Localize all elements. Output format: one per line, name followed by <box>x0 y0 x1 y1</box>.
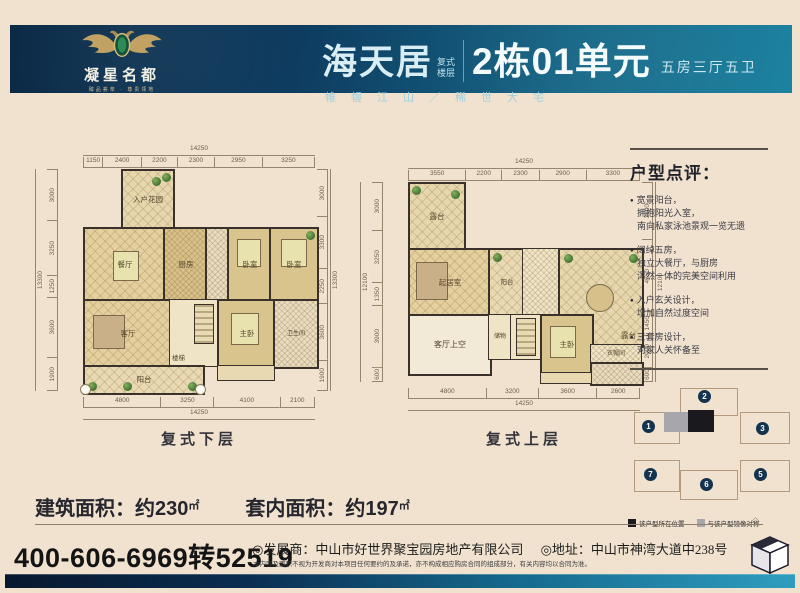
legend-swatch-current <box>628 519 636 527</box>
legend-swatch-mirror <box>697 519 705 527</box>
site-plan: 1 2 3 7 6 5 <box>628 386 796 514</box>
dim-left-segments: 30003250125036001900 <box>47 169 58 391</box>
developer-line: ◎发展商：中山市好世界聚宝园房地产有限公司 ◎地址：中山市神湾大道中238号 <box>252 539 752 558</box>
room-master-upper: 主卧 <box>540 314 594 376</box>
column-dot <box>80 384 91 395</box>
room-label: 衣帽间 <box>607 351 625 358</box>
site-plan-legend: 该户型所在位置 与该户型镜像对称 <box>628 518 760 528</box>
review-bottom-rule <box>630 368 768 370</box>
room-balcony-right <box>217 365 275 381</box>
review-line: 三套房设计， <box>630 331 768 344</box>
plant <box>306 231 315 240</box>
dim-top-segments: 35502200230029003300 <box>408 170 640 181</box>
mirror-unit-block <box>664 412 688 432</box>
dim-bottom-total: 14250 <box>83 409 315 420</box>
room-hall-upper <box>522 248 560 316</box>
room-dining: 餐厅 <box>83 227 167 303</box>
review-line: 南向私家泳池景观一览无遗 <box>630 220 768 233</box>
divider-rule <box>35 524 763 525</box>
legend-item: 与该户型镜像对称 <box>697 518 760 528</box>
header-banner: 凝星名都 臻品荟萃 · 尊贵领地 海天居 复式 楼层 2栋01单元 五房三厅五卫… <box>10 25 792 93</box>
project-tag-line1: 复式 <box>437 57 455 67</box>
round-table <box>586 284 614 312</box>
legend-item: 该户型所在位置 <box>628 518 685 528</box>
title-divider <box>463 40 464 82</box>
room-family: 起居室 <box>408 248 492 318</box>
dim-left-segments: 3000325013503900600 <box>372 182 383 382</box>
project-name: 海天居 <box>322 34 433 85</box>
review-panel: 户型点评： 宽景阳台， 拥抱阳光入室， 南向私家泳池景观一览无遗 阔绰五房， 独… <box>630 148 768 370</box>
brand-tagline: 臻品荟萃 · 尊贵领地 <box>62 86 182 93</box>
room-stairs-upper <box>510 314 542 360</box>
project-tag-line2: 楼层 <box>437 68 455 78</box>
room-label: 阳台 <box>501 279 514 286</box>
room-balcony-strip <box>540 372 592 384</box>
review-line: 对家人关怀备至 <box>630 344 768 357</box>
room-label: 卧室 <box>287 261 302 269</box>
review-line: 宽景阳台， <box>630 194 768 207</box>
room-label: 阳台 <box>137 376 152 384</box>
room-entry-garden: 入户花园 <box>121 169 175 231</box>
disclaimer: 本内容及面积不视为开发商对本项目任何要约的及承诺，亦不构成相应购房合同的组成部分… <box>253 558 591 568</box>
room-label: 入户花园 <box>133 196 163 204</box>
inner-area-unit: ㎡ <box>399 500 410 512</box>
plant <box>412 186 421 195</box>
review-line: 浑然一体的完美空间利用 <box>630 270 768 283</box>
floorplan-lower: 14250 115024002200230029503250 13300 300… <box>35 145 340 425</box>
developer-name: ◎发展商：中山市好世界聚宝园房地产有限公司 <box>252 542 523 557</box>
room-storage: 储物 <box>488 314 512 360</box>
room-living: 客厅 <box>83 299 173 369</box>
room-label: 卧室 <box>243 261 258 269</box>
dim-bottom-segments: 4800325041002100 <box>83 397 315 408</box>
plant <box>123 382 132 391</box>
room-master: 主卧 <box>217 299 277 369</box>
built-area-value: 约230 <box>135 498 188 520</box>
room-terrace-left: 露台 <box>408 182 466 252</box>
unit-spec: 五房三厅五卫 <box>661 57 757 77</box>
review-top-rule <box>630 148 768 150</box>
building-outline <box>634 460 680 492</box>
dim-left-total: 12100 <box>360 182 371 382</box>
room-label: 厨房 <box>179 261 194 269</box>
review-line: 增加自然过度空间 <box>630 307 768 320</box>
dim-left-total: 13300 <box>35 169 46 391</box>
review-bullets: 宽景阳台， 拥抱阳光入室， 南向私家泳池景观一览无遗 阔绰五房， 独立大餐厅，与… <box>630 194 768 357</box>
unit-title: 2栋01单元 <box>472 31 651 85</box>
room-label: 储物 <box>494 334 506 341</box>
caption-upper: 复式上层 <box>408 428 640 449</box>
room-bedroom-1: 卧室 <box>227 227 273 303</box>
building-number: 5 <box>754 468 767 481</box>
room-hall-stairs: 楼梯 <box>169 299 219 367</box>
building-number: 1 <box>642 420 655 433</box>
dim-top-total: 14250 <box>83 145 315 156</box>
dim-top-segments: 115024002200230029503250 <box>83 157 315 168</box>
building-number: 6 <box>700 478 713 491</box>
title-group: 海天居 复式 楼层 2栋01单元 五房三厅五卫 <box>322 31 757 85</box>
dim-bottom-total: 14250 <box>408 400 640 411</box>
plant <box>451 190 460 199</box>
inner-area-label: 套内面积： <box>245 498 345 520</box>
built-area-label: 建筑面积： <box>35 498 135 520</box>
inner-area: 套内面积：约197㎡ <box>245 492 409 521</box>
room-void: 客厅上空 <box>408 314 492 376</box>
plant <box>564 254 573 263</box>
brand-logo: 凝星名都 臻品荟萃 · 尊贵领地 <box>62 27 182 93</box>
room-kitchen: 厨房 <box>163 227 209 303</box>
room-balcony: 阳台 <box>83 365 205 395</box>
plant <box>152 177 161 186</box>
dim-bottom-segments: 4800320036002600 <box>408 388 640 399</box>
built-area: 建筑面积：约230㎡ <box>35 492 199 521</box>
floorplan-upper-body: 露台 起居室 阳台 露台 客厅上空 储物 <box>408 182 640 382</box>
inner-area-value: 约197 <box>345 498 398 520</box>
room-label: 楼梯 <box>172 355 185 362</box>
column-dot <box>195 384 206 395</box>
building-number: 2 <box>698 390 711 403</box>
building-number: 7 <box>644 468 657 481</box>
plant <box>162 173 171 182</box>
building-number: 3 <box>756 422 769 435</box>
floorplan-lower-body: 入户花园 餐厅 厨房 卧室 卧室 客厅 <box>83 169 315 391</box>
review-line: 入户玄关设计， <box>630 294 768 307</box>
plant <box>493 253 502 262</box>
room-bedroom-2: 卧室 <box>269 227 319 303</box>
room-balcony-upper: 阳台 <box>488 248 526 318</box>
review-line: 阔绰五房， <box>630 244 768 257</box>
review-title: 户型点评： <box>630 159 768 184</box>
bottom-gradient-bar <box>5 574 795 588</box>
slogan: 帷幄江山／稀世大宅 <box>325 89 559 105</box>
review-bullet: 入户玄关设计， 增加自然过度空间 <box>630 294 768 320</box>
diamond-ornament: ◇ <box>752 515 759 526</box>
room-label: 卫生间 <box>287 331 305 338</box>
room-label: 主卧 <box>560 341 575 349</box>
project-tag: 复式 楼层 <box>437 57 455 78</box>
dim-top-total: 14250 <box>408 158 640 169</box>
brand-name: 凝星名都 <box>62 64 182 85</box>
floorplan-upper: 14250 35502200230029003300 12100 3000325… <box>360 158 665 418</box>
dim-right-total: 13300 <box>330 169 341 391</box>
built-area-unit: ㎡ <box>188 500 199 512</box>
review-line: 拥抱阳光入室， <box>630 207 768 220</box>
review-bullet: 阔绰五房， 独立大餐厅，与厨房 浑然一体的完美空间利用 <box>630 244 768 283</box>
stairs <box>194 304 214 344</box>
room-label: 餐厅 <box>118 261 133 269</box>
caption-lower: 复式下层 <box>83 428 315 449</box>
review-line: 独立大餐厅，与厨房 <box>630 257 768 270</box>
room-label: 客厅 <box>121 330 136 338</box>
room-bath-master: 卫生间 <box>273 299 319 369</box>
room-label: 露台 <box>430 213 445 221</box>
room-label: 客厅上空 <box>434 341 466 350</box>
stairs <box>516 318 536 356</box>
phoenix-wings-icon <box>78 27 166 61</box>
review-bullet: 三套房设计， 对家人关怀备至 <box>630 331 768 357</box>
this-unit-block <box>688 410 714 432</box>
review-bullet: 宽景阳台， 拥抱阳光入室， 南向私家泳池景观一览无遗 <box>630 194 768 233</box>
room-label: 起居室 <box>439 279 462 287</box>
address: ◎地址：中山市神湾大道中238号 <box>541 542 728 557</box>
poster-page: 凝星名都 臻品荟萃 · 尊贵领地 海天居 复式 楼层 2栋01单元 五房三厅五卫… <box>0 0 800 593</box>
room-label: 主卧 <box>240 330 255 338</box>
area-summary: 建筑面积：约230㎡ 套内面积：约197㎡ <box>35 492 410 521</box>
legend-label: 该户型所在位置 <box>639 518 685 528</box>
